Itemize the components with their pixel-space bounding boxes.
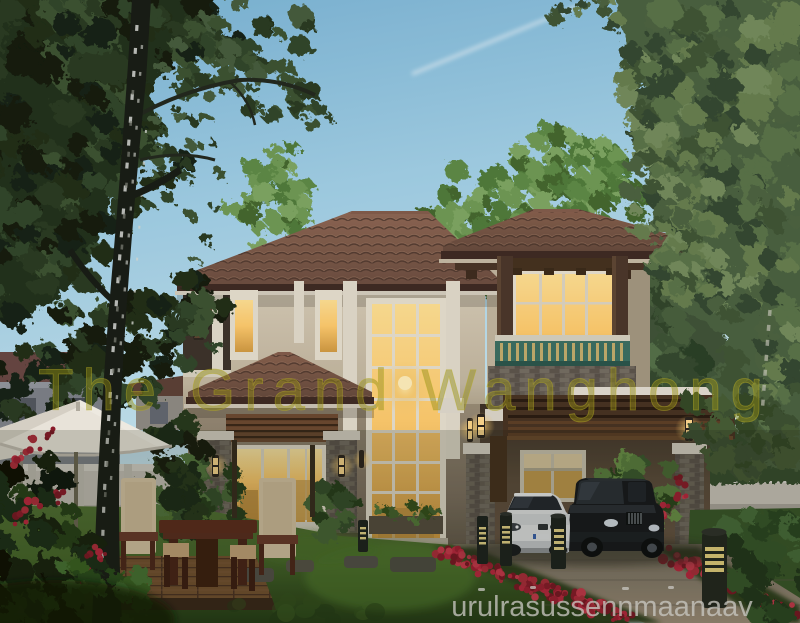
svg-text:urulrasussennmaanaav: urulrasussennmaanaav [451,591,753,623]
svg-text:The Grand Wanghong: The Grand Wanghong [38,358,772,423]
